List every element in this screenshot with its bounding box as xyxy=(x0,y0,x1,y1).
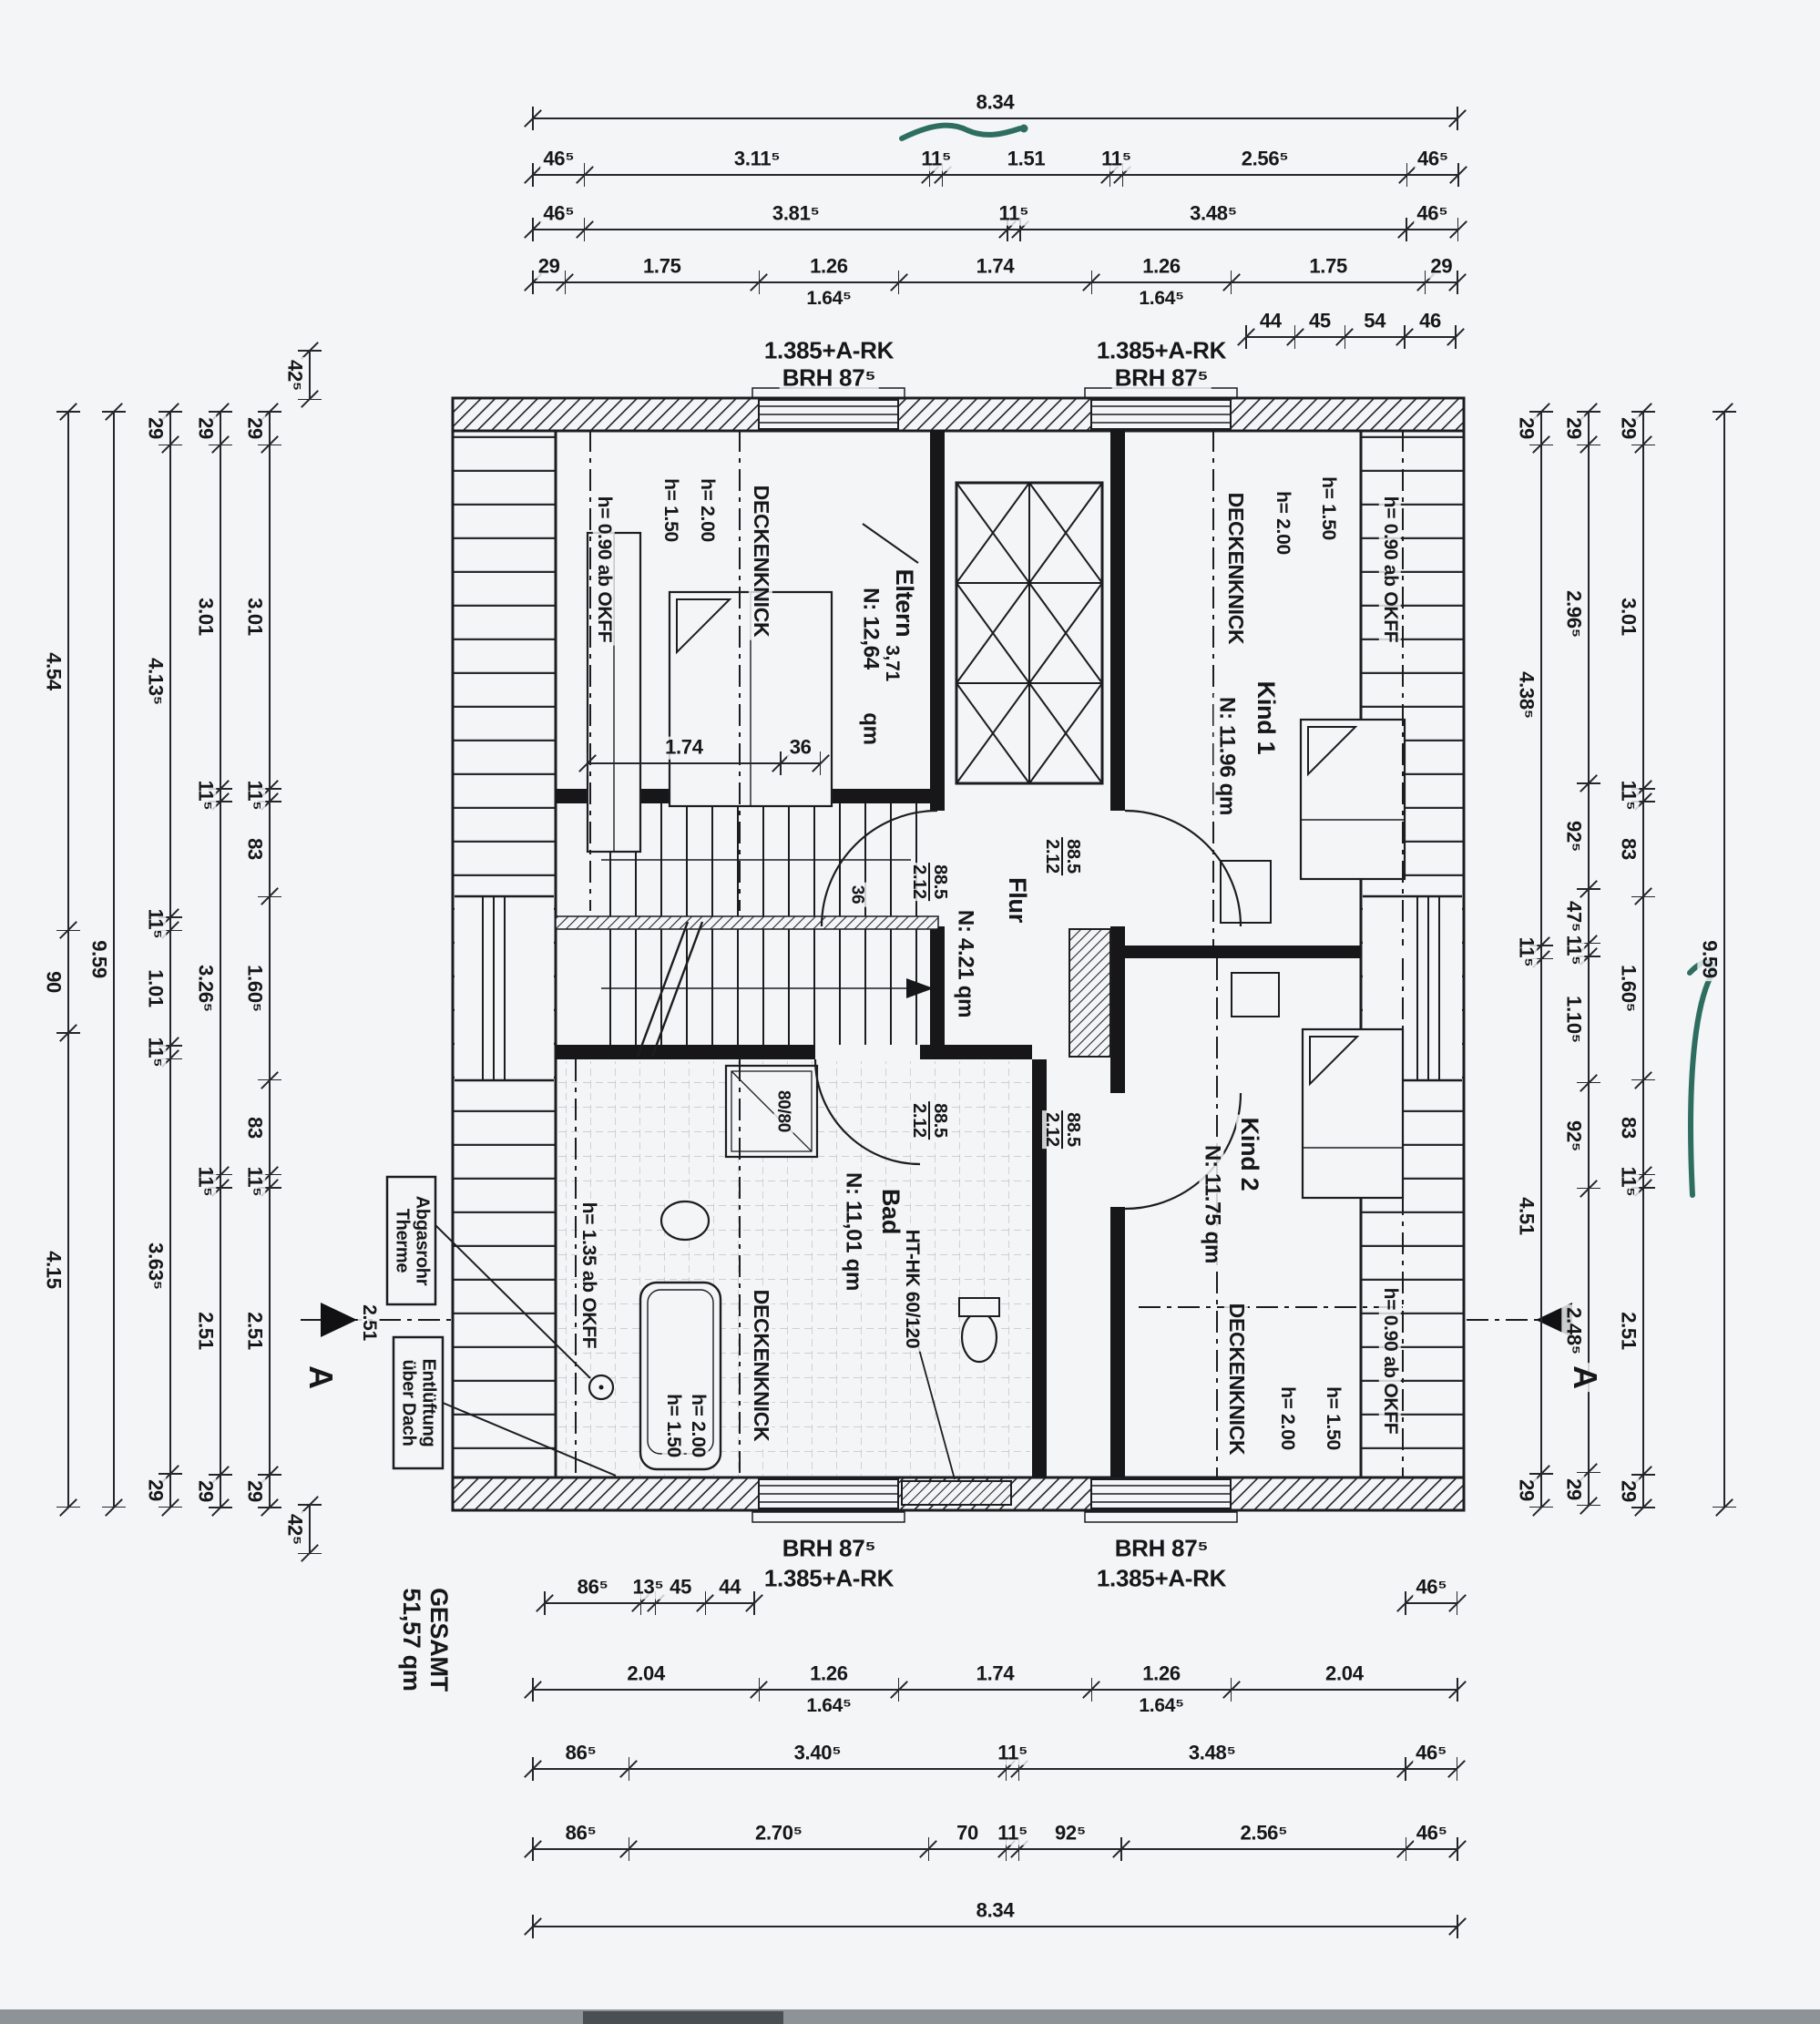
door-width: 88.5 xyxy=(928,1101,949,1140)
total-area: GESAMT 51,57 qm xyxy=(398,1585,453,1694)
sill-top-right-type: 1.385+A-RK xyxy=(1094,337,1229,363)
sill-bottom-left-type: 1.385+A-RK xyxy=(762,1565,896,1591)
radiator-note: HT-HK 60/120 xyxy=(901,1227,923,1352)
room-kind1-name: Kind 1 xyxy=(1253,679,1280,758)
blueprint-page: 8.3446⁵3.11⁵11⁵1.5111⁵2.56⁵46⁵46⁵3.81⁵11… xyxy=(0,0,1820,2024)
height-note: h= 0.90 ab OKFF xyxy=(593,494,615,646)
section-letter-left: A xyxy=(302,1363,339,1392)
room-flur-name: Flur xyxy=(1004,874,1031,925)
door-height: 2.12 xyxy=(909,1103,928,1138)
height-note: h= 0.90 ab OKFF xyxy=(1379,1285,1401,1437)
flue-note: Abgasrohr Therme xyxy=(392,1193,433,1288)
room-eltern-area-unit: qm xyxy=(858,710,883,747)
section-letter-right: A xyxy=(1567,1363,1603,1392)
room-kind2-name: Kind 2 xyxy=(1236,1115,1263,1194)
deckenknick-note: DECKENKNICK xyxy=(1223,490,1247,648)
height-note: h= 1.50 xyxy=(659,475,681,545)
height-note: h= 0.90 ab OKFF xyxy=(1379,494,1401,646)
room-kind2-area: N: 11.75 qm xyxy=(1200,1142,1224,1266)
height-note: h= 1.35 ab OKFF xyxy=(578,1200,599,1352)
height-note: h= 2.00 xyxy=(1272,488,1293,557)
section-dim: 2.51 xyxy=(358,1302,380,1344)
door-width: 88.5 xyxy=(1061,1110,1082,1149)
sill-top-right-brh: BRH 87⁵ xyxy=(1112,364,1212,391)
door-width: 88.5 xyxy=(1061,837,1082,875)
shower-size: 80/80 xyxy=(773,1088,792,1135)
height-note: h= 1.50 xyxy=(662,1391,684,1460)
sill-bottom-right-brh: BRH 87⁵ xyxy=(1112,1535,1212,1561)
height-note: h= 2.00 xyxy=(1276,1384,1298,1453)
height-note: h= 2.00 xyxy=(696,475,718,545)
deckenknick-note: DECKENKNICK xyxy=(749,1287,772,1445)
door-height: 2.12 xyxy=(1042,1112,1061,1147)
stair-dim: 36 xyxy=(847,883,866,907)
vent-note: Entlüftung über Dach xyxy=(398,1356,439,1450)
height-note: h= 1.50 xyxy=(1322,1384,1344,1453)
height-note: h= 2.00 xyxy=(687,1391,709,1460)
door-size-label: 88.52.12 xyxy=(1042,1110,1082,1149)
height-note: h= 1.50 xyxy=(1317,474,1339,543)
sill-top-left-brh: BRH 87⁵ xyxy=(780,364,879,391)
room-eltern-area-correction: 3,71 xyxy=(881,642,903,684)
door-height: 2.12 xyxy=(909,864,928,899)
deckenknick-note: DECKENKNICK xyxy=(749,483,772,640)
deckenknick-note: DECKENKNICK xyxy=(1224,1301,1248,1458)
room-eltern-area: N: 12,64 xyxy=(858,585,883,672)
sill-bottom-left-brh: BRH 87⁵ xyxy=(780,1535,879,1561)
door-size-label: 88.52.12 xyxy=(909,1101,949,1140)
door-height: 2.12 xyxy=(1042,839,1061,874)
room-kind1-area: N: 11.96 qm xyxy=(1214,694,1239,818)
door-size-label: 88.52.12 xyxy=(909,863,949,901)
room-flur-area: N: 4.21 qm xyxy=(953,907,977,1020)
door-width: 88.5 xyxy=(928,863,949,901)
room-bad-area: N: 11,01 qm xyxy=(841,1170,865,1293)
sill-bottom-right-type: 1.385+A-RK xyxy=(1094,1565,1229,1591)
door-size-label: 88.52.12 xyxy=(1042,837,1082,875)
annotations: 1.385+A-RKBRH 87⁵1.385+A-RKBRH 87⁵BRH 87… xyxy=(0,0,1820,2024)
sill-top-left-type: 1.385+A-RK xyxy=(762,337,896,363)
scan-edge-strip xyxy=(0,2009,1820,2024)
room-eltern-name: Eltern xyxy=(891,567,918,640)
